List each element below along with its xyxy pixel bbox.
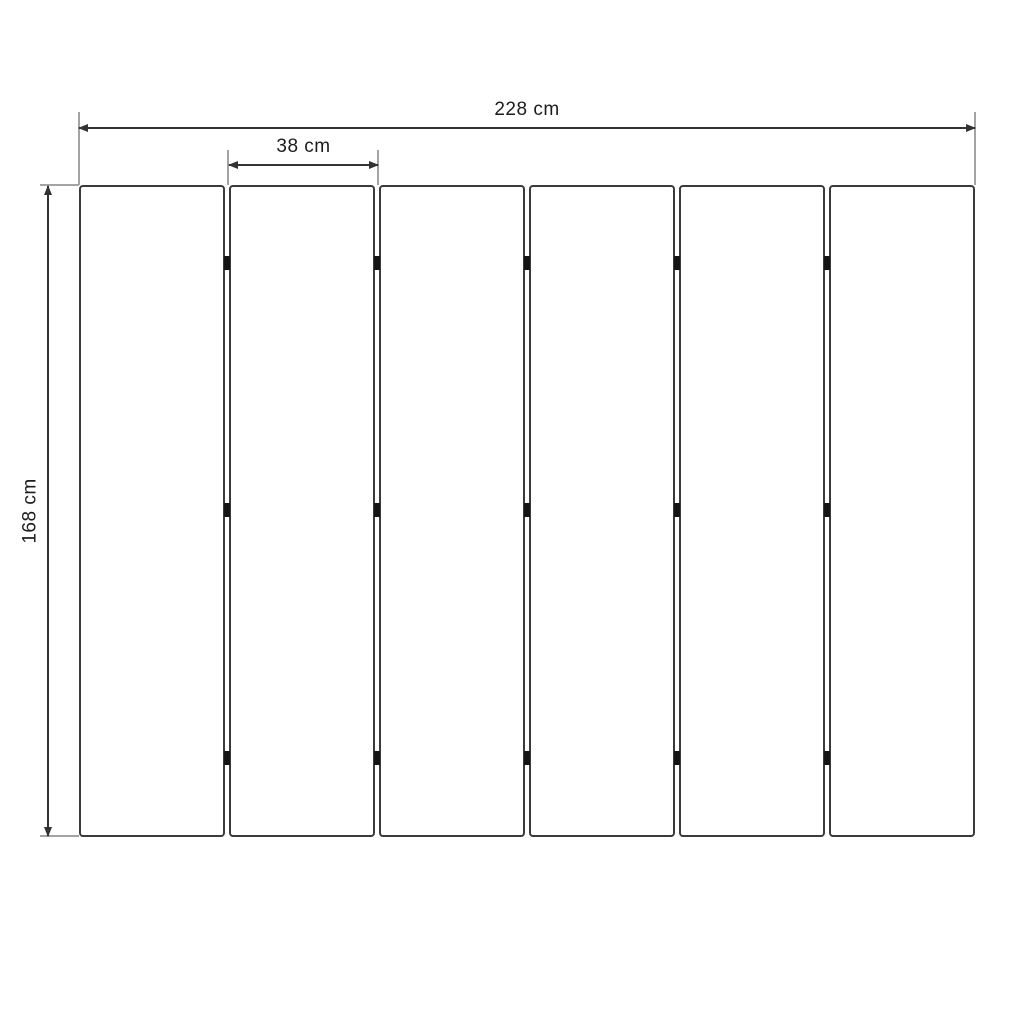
extension-line-total-left	[78, 112, 80, 185]
hinge	[224, 751, 230, 765]
hinge	[674, 751, 680, 765]
extension-line-total-right	[974, 112, 976, 185]
dimension-line-height	[47, 186, 49, 836]
hinge	[824, 503, 830, 517]
panel-4	[529, 185, 675, 837]
hinge	[824, 751, 830, 765]
hinge	[674, 503, 680, 517]
panel-5	[679, 185, 825, 837]
panel-dimension-diagram: 228 cm 38 cm 168 cm	[0, 0, 1024, 1024]
panel-6	[829, 185, 975, 837]
panel-2	[229, 185, 375, 837]
height-label: 168 cm	[20, 478, 43, 543]
hinge	[374, 751, 380, 765]
hinge	[374, 256, 380, 270]
panel-1	[79, 185, 225, 837]
hinge	[224, 503, 230, 517]
hinge	[524, 751, 530, 765]
dimension-line-total-width	[79, 127, 975, 129]
panels-area	[79, 185, 975, 837]
hinge	[674, 256, 680, 270]
total-width-label: 228 cm	[79, 99, 975, 122]
hinge	[824, 256, 830, 270]
hinge	[524, 256, 530, 270]
hinge	[224, 256, 230, 270]
panel-3	[379, 185, 525, 837]
hinge	[374, 503, 380, 517]
dimension-line-panel-width	[229, 164, 378, 166]
hinge	[524, 503, 530, 517]
panel-width-label: 38 cm	[229, 136, 378, 159]
